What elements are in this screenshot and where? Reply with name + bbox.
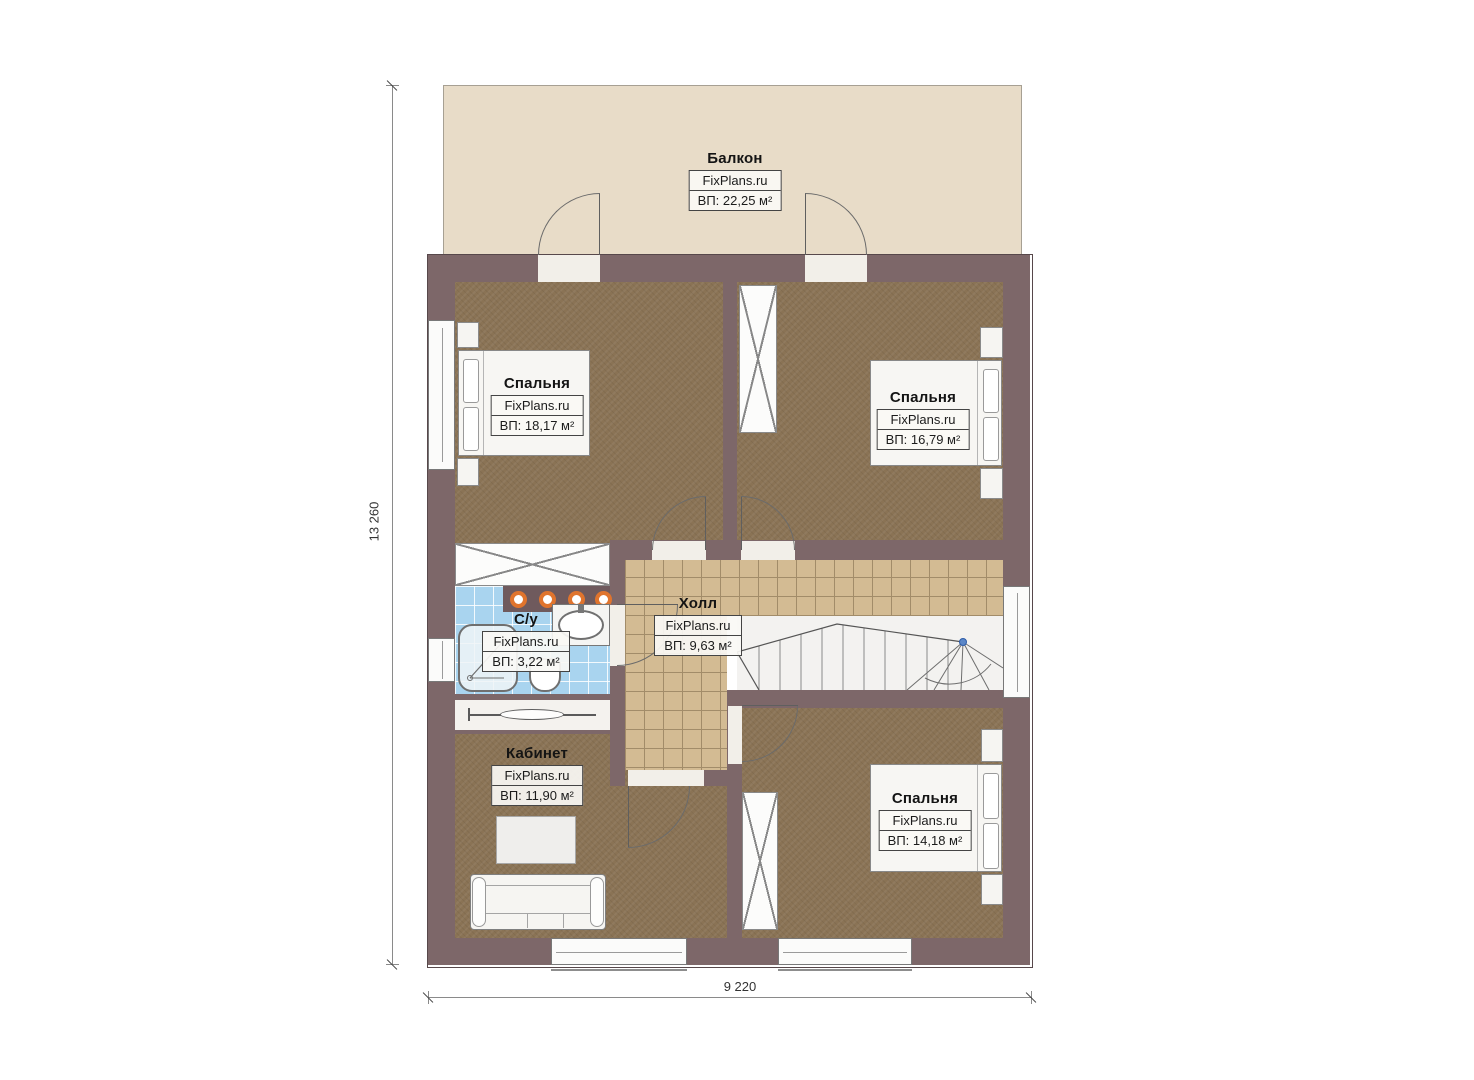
room-label-office: Кабинет FixPlans.ru ВП: 11,90 м² — [491, 745, 583, 806]
room-label-hall: Холл FixPlans.ru ВП: 9,63 м² — [654, 595, 742, 656]
floor-hall-corridor — [625, 558, 727, 770]
pillow — [463, 407, 479, 451]
brand-text: FixPlans.ru — [483, 632, 569, 652]
faucet-icon — [578, 604, 584, 613]
brand-text: FixPlans.ru — [878, 410, 969, 430]
room-area: ВП: 18,17 м² — [492, 416, 583, 435]
room-area: ВП: 9,63 м² — [655, 636, 741, 655]
window-bottom-bedroom — [778, 938, 912, 965]
room-area: ВП: 22,25 м² — [690, 191, 781, 210]
room-label-balcony: Балкон FixPlans.ru ВП: 22,25 м² — [689, 150, 782, 211]
blanket-line — [977, 361, 978, 465]
sofa — [470, 874, 606, 930]
dimension-line-vertical — [392, 85, 393, 965]
balcony-door-left-opening — [538, 255, 600, 282]
room-area: ВП: 3,22 м² — [483, 652, 569, 671]
room-name: Балкон — [707, 150, 762, 167]
stair-node — [960, 639, 967, 646]
room-area: ВП: 16,79 м² — [878, 430, 969, 449]
wall-bottom — [428, 938, 1030, 965]
pillow — [463, 359, 479, 403]
wall-bathroom-hall — [610, 560, 625, 786]
dimension-line-horizontal — [428, 997, 1032, 998]
wardrobe-bottom-middle — [742, 792, 778, 930]
room-name: Спальня — [892, 790, 958, 807]
room-info-box: FixPlans.ru ВП: 11,90 м² — [491, 765, 583, 806]
pillow — [983, 369, 999, 413]
room-info-box: FixPlans.ru ВП: 14,18 м² — [879, 810, 972, 851]
room-name: Спальня — [890, 389, 956, 406]
brand-text: FixPlans.ru — [690, 171, 781, 191]
sofa-armrest — [472, 877, 486, 927]
blanket-line — [483, 351, 484, 455]
nightstand — [457, 458, 479, 486]
wall-corridor-bottom-stub — [704, 770, 727, 786]
ceiling-light-icon — [510, 591, 527, 608]
nightstand — [457, 322, 479, 348]
pillow — [983, 773, 999, 819]
floor-plan: 13 260 9 220 — [0, 0, 1474, 1080]
room-info-box: FixPlans.ru ВП: 16,79 м² — [877, 409, 970, 450]
wardrobe-top-right — [739, 285, 777, 433]
room-area: ВП: 11,90 м² — [492, 786, 582, 805]
room-name: С/у — [514, 611, 538, 628]
sofa-seat-divider — [527, 913, 528, 928]
closet-rod-end — [468, 708, 470, 721]
brand-text: FixPlans.ru — [655, 616, 741, 636]
room-info-box: FixPlans.ru ВП: 3,22 м² — [482, 631, 570, 672]
room-name: Холл — [679, 595, 717, 612]
sofa-seat-divider — [563, 913, 564, 928]
door-opening-bedroom-bottom-right — [728, 706, 742, 764]
room-label-bathroom: С/у FixPlans.ru ВП: 3,22 м² — [482, 611, 570, 672]
room-info-box: FixPlans.ru ВП: 9,63 м² — [654, 615, 742, 656]
window-left-bathroom — [428, 638, 455, 682]
sofa-back-line — [486, 885, 590, 886]
office-table — [496, 816, 576, 864]
wall-top — [428, 255, 1030, 282]
nightstand — [980, 327, 1003, 358]
pillow — [983, 417, 999, 461]
window-left-bedroom — [428, 320, 455, 470]
pillow — [983, 823, 999, 869]
dimension-label-horizontal: 9 220 — [700, 979, 780, 994]
room-name: Спальня — [504, 375, 570, 392]
window-bottom-office — [551, 938, 687, 965]
blanket-line — [977, 765, 978, 871]
window-sill — [778, 969, 912, 971]
brand-text: FixPlans.ru — [492, 766, 582, 786]
stairs — [737, 616, 1003, 690]
room-info-box: FixPlans.ru ВП: 18,17 м² — [491, 395, 584, 436]
brand-text: FixPlans.ru — [492, 396, 583, 416]
door-opening-office — [628, 770, 704, 786]
window-sill — [551, 969, 687, 971]
room-label-bedroom-top-left: Спальня FixPlans.ru ВП: 18,17 м² — [491, 375, 584, 436]
nightstand — [980, 468, 1003, 499]
brand-text: FixPlans.ru — [880, 811, 971, 831]
room-area: ВП: 14,18 м² — [880, 831, 971, 850]
room-info-box: FixPlans.ru ВП: 22,25 м² — [689, 170, 782, 211]
sofa-armrest — [590, 877, 604, 927]
wardrobe-top-left — [455, 543, 610, 586]
window-right-stairs — [1003, 586, 1030, 698]
dimension-label-vertical: 13 260 — [367, 492, 382, 552]
wall-between-top-bedrooms — [723, 282, 737, 558]
nightstand — [981, 874, 1003, 905]
wall-niche-bottom — [455, 730, 625, 734]
room-label-bedroom-top-right: Спальня FixPlans.ru ВП: 16,79 м² — [877, 389, 970, 450]
sofa-seat-line — [486, 913, 590, 914]
nightstand — [981, 729, 1003, 762]
room-label-bedroom-bottom-right: Спальня FixPlans.ru ВП: 14,18 м² — [879, 790, 972, 851]
balcony-door-right-opening — [805, 255, 867, 282]
room-name: Кабинет — [506, 745, 568, 762]
closet-rod-handle — [500, 709, 564, 720]
